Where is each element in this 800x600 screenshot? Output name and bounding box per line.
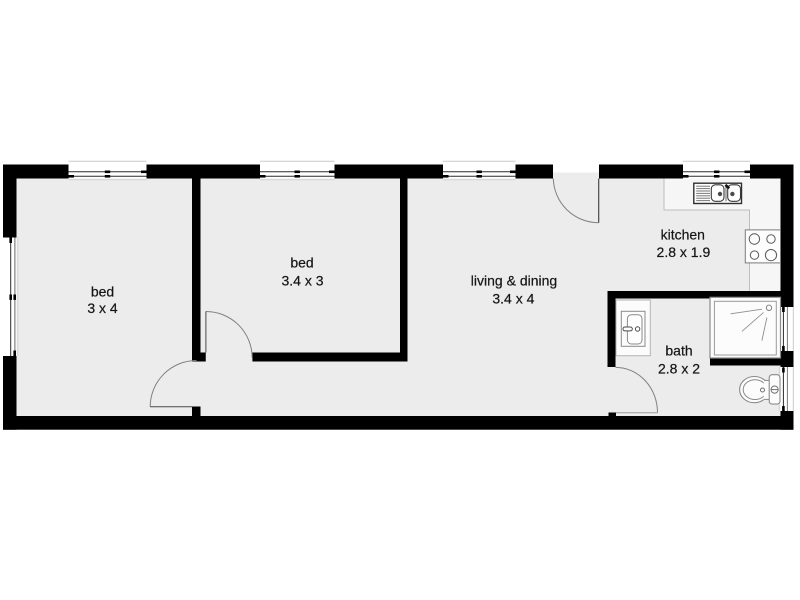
svg-text:2.8 x 1.9: 2.8 x 1.9 [657, 244, 711, 260]
svg-text:3.4 x 3: 3.4 x 3 [281, 273, 323, 289]
svg-text:3.4 x 4: 3.4 x 4 [492, 290, 534, 306]
svg-text:bed: bed [91, 283, 114, 299]
svg-text:living & dining: living & dining [471, 273, 557, 289]
svg-text:kitchen: kitchen [661, 227, 705, 243]
svg-text:3 x 4: 3 x 4 [87, 300, 118, 316]
svg-text:bath: bath [665, 343, 692, 359]
svg-text:2.8 x 2: 2.8 x 2 [658, 360, 700, 376]
svg-text:bed: bed [290, 255, 313, 271]
